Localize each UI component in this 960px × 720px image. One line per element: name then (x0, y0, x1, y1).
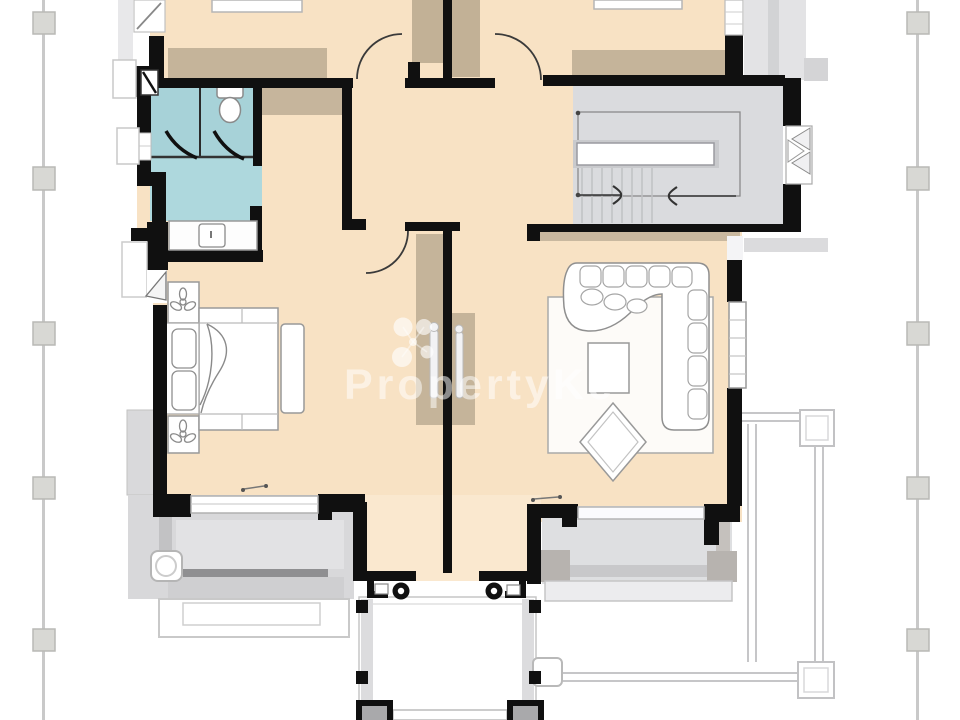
svg-text:PropertyKe: PropertyKe (344, 361, 616, 409)
